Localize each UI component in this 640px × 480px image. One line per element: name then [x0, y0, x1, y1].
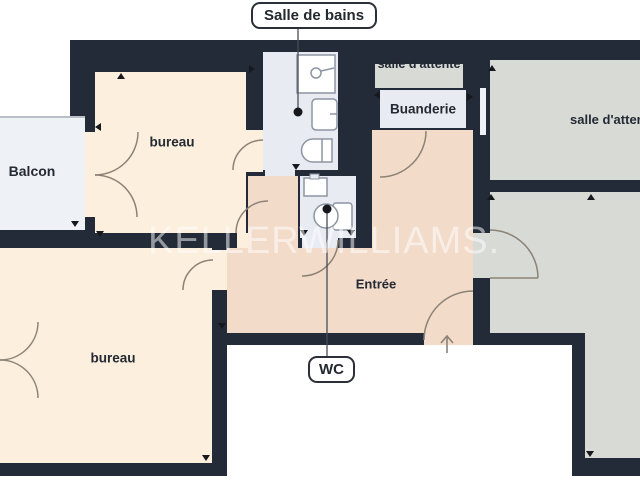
room-label-entree: Entrée	[356, 277, 396, 292]
salle-de-bains-callout: Salle de bains	[251, 2, 377, 29]
watermark: KELLERWILLIAMS.	[148, 220, 500, 263]
wc-callout: WC	[308, 356, 355, 383]
outside-area	[0, 476, 640, 480]
window-opening	[480, 88, 486, 135]
door-opening	[424, 333, 473, 345]
room-bureau-top	[95, 72, 246, 233]
outside-area	[227, 345, 572, 480]
room-lower-right-extension	[585, 192, 640, 458]
room-label-salle-attente-strip: salle d'attente	[378, 57, 461, 71]
room-label-bureau-top: bureau	[149, 135, 194, 150]
room-label-salle-attente-right: salle d'attente	[570, 112, 640, 127]
door-opening	[246, 130, 263, 172]
room-label-bureau-bottom: bureau	[90, 351, 135, 366]
room-label-buanderie: Buanderie	[390, 102, 456, 117]
door-opening	[85, 132, 95, 217]
floorplan: KELLERWILLIAMS. bureau Balcon Buanderie …	[0, 0, 640, 480]
room-salle-de-bains	[263, 52, 338, 170]
room-label-balcon: Balcon	[9, 163, 56, 179]
